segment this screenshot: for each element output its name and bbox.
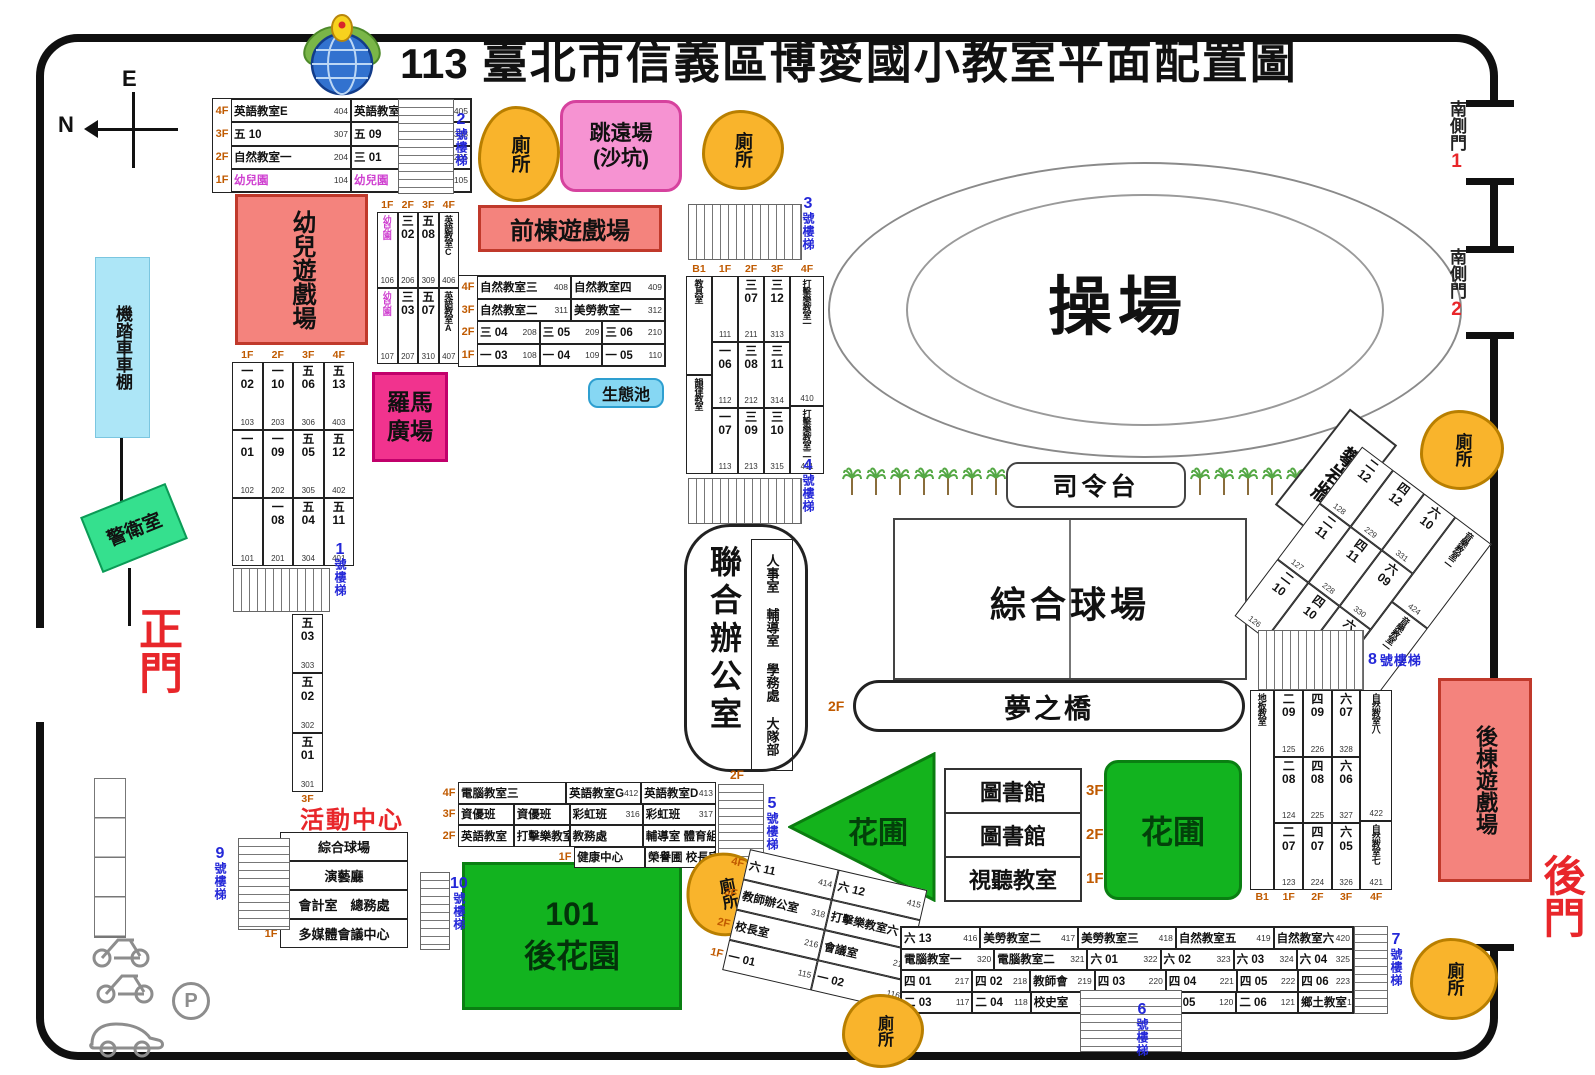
room-number: 217 bbox=[955, 976, 969, 986]
room-number: 320 bbox=[977, 954, 991, 964]
palm-tree-icon bbox=[986, 452, 1006, 508]
room-number: 203 bbox=[271, 418, 284, 427]
room-cell: 四09226 bbox=[1303, 690, 1332, 757]
room-number: 409 bbox=[648, 282, 662, 292]
room-cell: 三07211 bbox=[738, 276, 764, 342]
room-name: 四 05 bbox=[1240, 973, 1268, 989]
room-cell: 彩虹班316 bbox=[570, 804, 643, 826]
table-row: 2F英語教室打擊樂教室五教務處輔導室 體育組215 bbox=[440, 825, 716, 847]
room-name: 自然教室六 bbox=[1277, 930, 1335, 946]
class-number: 06 bbox=[718, 358, 731, 371]
room-number: 328 bbox=[1339, 745, 1352, 754]
room-number: 404 bbox=[334, 106, 348, 116]
room-name: 音樂教室一 bbox=[1379, 614, 1413, 654]
room-cell: 四 02218 bbox=[972, 970, 1030, 992]
room-number: 302 bbox=[301, 721, 314, 730]
room-cell: 美勞教室三418 bbox=[1078, 927, 1176, 949]
room-cell: 自然教室七421 bbox=[1360, 821, 1392, 890]
table-column-body: 五03303五02302五01301 bbox=[292, 614, 323, 792]
room-cell: 電腦教室一320 bbox=[901, 949, 994, 971]
table-column: 3F五06306五05305五04304 bbox=[293, 348, 324, 566]
class-number: 11 bbox=[332, 514, 345, 527]
room-number: 314 bbox=[770, 396, 783, 405]
floor-label: 4F bbox=[1360, 890, 1392, 904]
room-name: 英語教室D bbox=[644, 785, 698, 801]
room-number: 118 bbox=[1014, 997, 1028, 1007]
room-cell: 自然教室五419 bbox=[1176, 927, 1274, 949]
grade-label: 四 bbox=[1311, 760, 1323, 773]
palm-tree-icon bbox=[914, 452, 934, 508]
library-floor-label: 2F bbox=[1086, 826, 1104, 843]
room-number: 124 bbox=[1282, 811, 1295, 820]
room-number: 113 bbox=[719, 462, 732, 471]
room-name: 四 01 bbox=[904, 973, 932, 989]
class-number: 02 bbox=[301, 690, 314, 703]
class-number: 11 bbox=[771, 358, 784, 371]
room-name: 自然教室三 bbox=[480, 279, 538, 295]
palm-tree-icon bbox=[890, 452, 910, 508]
room-name: 六 01 bbox=[1090, 951, 1118, 967]
room-name: 打擊樂教室二 bbox=[801, 409, 814, 457]
room-number: 421 bbox=[1370, 878, 1383, 887]
room-cell: 四 04221 bbox=[1166, 970, 1237, 992]
room-cell: 111 bbox=[712, 276, 738, 342]
floor-label: 2F bbox=[459, 321, 477, 344]
room-name: 美勞教室三 bbox=[1081, 930, 1139, 946]
room-name: 一 01 bbox=[727, 948, 757, 970]
class-number: 08 bbox=[1311, 773, 1324, 786]
class-number: 07 bbox=[1282, 840, 1295, 853]
room-name: 二 04 bbox=[975, 994, 1003, 1010]
room-name: 自然教室五 bbox=[1179, 930, 1237, 946]
room-cell: 五02302 bbox=[292, 673, 323, 732]
class-number: 03 bbox=[301, 630, 314, 643]
table-column-body: 一10203一09202一08201 bbox=[263, 362, 294, 566]
room-number: 213 bbox=[744, 462, 757, 471]
room-name: 美勞教室一 bbox=[574, 302, 632, 318]
gate-gap-south2 bbox=[1486, 252, 1502, 332]
class-number: 07 bbox=[1311, 840, 1324, 853]
table-column: 1F一02103一01102101 bbox=[232, 348, 263, 566]
car-icon bbox=[91, 1024, 163, 1056]
room-cell: 六07328 bbox=[1332, 690, 1361, 757]
gate-tick bbox=[1466, 178, 1514, 185]
floor-label: 1F bbox=[712, 262, 738, 276]
room-number: 311 bbox=[554, 305, 568, 315]
room-cell: 五12402 bbox=[324, 430, 355, 498]
floor-label: B1 bbox=[686, 262, 712, 276]
room-cell: 三02206 bbox=[398, 212, 419, 288]
room-name: 四 06 bbox=[1301, 973, 1329, 989]
class-number: 09 bbox=[271, 446, 284, 459]
room-name: 幼兒園 bbox=[381, 215, 394, 239]
room-cell: 美勞教室二417 bbox=[980, 927, 1078, 949]
room-name: 打擊樂教室一 bbox=[801, 279, 814, 327]
room-number: 224 bbox=[1311, 878, 1324, 887]
room-number: 223 bbox=[1336, 976, 1350, 986]
room-name: 英語教室E bbox=[234, 103, 288, 119]
table-column-body: 五06306五05305五04304 bbox=[293, 362, 324, 566]
room-cell: 二 06121 bbox=[1236, 992, 1298, 1014]
room-name: 幼兒園 bbox=[234, 172, 269, 188]
floor-label: 4F bbox=[213, 99, 231, 122]
grade-label: 四 bbox=[1311, 826, 1323, 839]
room-number: 209 bbox=[585, 327, 599, 337]
floor-label: 3F bbox=[293, 348, 324, 362]
floor-label: 2F bbox=[738, 262, 764, 276]
room-number: 219 bbox=[1078, 976, 1092, 986]
stairs-6 bbox=[1080, 990, 1182, 1052]
stairs-4 bbox=[688, 478, 802, 524]
table-column: 2F一10203一09202一08201 bbox=[263, 348, 294, 566]
multi-court: 綜合球場 bbox=[893, 518, 1247, 680]
room-cell: 自然教室四409 bbox=[571, 276, 665, 299]
back-gate-label: 後門 bbox=[1540, 854, 1582, 938]
room-number: 115 bbox=[797, 967, 812, 980]
class-number: 05 bbox=[1339, 840, 1352, 853]
table-column: 4F打擊樂教室一410打擊樂教室二411 bbox=[790, 262, 824, 474]
room-number: 416 bbox=[963, 933, 977, 943]
room-number: 107 bbox=[381, 352, 394, 361]
room-number: 403 bbox=[332, 418, 345, 427]
room-cell: 幼兒園107 bbox=[377, 288, 398, 364]
room-name: 演藝廳 bbox=[324, 866, 363, 885]
floor-label: B1 bbox=[1250, 890, 1274, 904]
room-cell: 二08124 bbox=[1274, 757, 1303, 824]
room-name: 會計室 總務處 bbox=[298, 895, 389, 914]
class-number: 07 bbox=[744, 292, 757, 305]
room-name: 四 04 bbox=[1169, 973, 1197, 989]
joint-office-building: 聯合辦公室 人事室 輔導室 學務處 大隊部 bbox=[684, 524, 808, 772]
class-number: 07 bbox=[1339, 706, 1352, 719]
stairs-7 bbox=[1354, 926, 1388, 1014]
south-center-building-table: 4F電腦教室三英語教室G412英語教室D4133F資優班資優班彩虹班316彩虹班… bbox=[440, 782, 716, 868]
room-name: 綜合球場 bbox=[318, 837, 370, 856]
class-number: 01 bbox=[301, 749, 314, 762]
joint-office-room-list: 人事室 輔導室 學務處 大隊部 bbox=[751, 539, 793, 771]
table-row: 電腦教室一320電腦教室二321六 01322六 02323六 03324六 0… bbox=[901, 949, 1353, 971]
flower-bed-square: 花圃 bbox=[1104, 760, 1242, 900]
class-number: 02 bbox=[241, 378, 254, 391]
class-number: 06 bbox=[1339, 773, 1352, 786]
room-cell: 教師會219 bbox=[1030, 970, 1095, 992]
room-cell: 三11314 bbox=[764, 342, 790, 408]
room-cell: 四 05222 bbox=[1237, 970, 1298, 992]
room-number: 415 bbox=[906, 896, 922, 909]
room-cell: 地板教室 bbox=[1250, 690, 1274, 890]
back-garden-101: 101後花園 bbox=[462, 862, 682, 1010]
stairs-3-label: 3號樓梯 bbox=[802, 196, 814, 251]
room-number: 105 bbox=[454, 175, 468, 185]
room-cell bbox=[440, 847, 556, 869]
floor-label: 1F bbox=[213, 169, 231, 192]
room-cell: 四07224 bbox=[1303, 823, 1332, 890]
room-name: 六 03 bbox=[1237, 951, 1265, 967]
road-line bbox=[120, 438, 123, 504]
room-cell: 幼兒園104 bbox=[231, 169, 351, 192]
back-playground: 後棟遊戲場 bbox=[1438, 678, 1532, 882]
scooter-shed: 機踏車車棚 bbox=[95, 257, 150, 438]
room-cell: 一08201 bbox=[263, 498, 294, 566]
room-cell: 一02103 bbox=[232, 362, 263, 430]
room-name: 資優班 bbox=[517, 806, 552, 822]
room-number: 201 bbox=[271, 554, 284, 563]
room-number: 402 bbox=[332, 486, 345, 495]
room-number: 101 bbox=[241, 554, 254, 563]
room-cell: 英語教室E404 bbox=[231, 99, 351, 122]
table-column-body: 自然教室八422自然教室七421 bbox=[1360, 690, 1392, 890]
room-number: 109 bbox=[585, 350, 599, 360]
room-name: 教師辦公室 bbox=[741, 887, 801, 916]
room-name: 四 03 bbox=[1098, 973, 1126, 989]
table-column-body: 三07211三08212三09213 bbox=[738, 276, 764, 474]
floor-label: 3F bbox=[213, 122, 231, 145]
middle-building-table: B1教具室韻律教室1F111一06112一071132F三07211三08212… bbox=[686, 262, 824, 474]
table-row: 六 13416美勞教室二417美勞教室三418自然教室五419自然教室六420 bbox=[901, 927, 1353, 949]
room-number: 417 bbox=[1061, 933, 1075, 943]
room-name: 三 05 bbox=[543, 324, 571, 340]
room-cell: 四 03220 bbox=[1095, 970, 1166, 992]
room-cell: 打擊樂教室一410 bbox=[790, 276, 824, 406]
room-cell: 英語教室A407 bbox=[439, 288, 460, 364]
room-number: 301 bbox=[301, 780, 314, 789]
room-number: 222 bbox=[1281, 976, 1295, 986]
room-cell: 英語教室C406 bbox=[439, 212, 460, 288]
room-name: 教具室 bbox=[693, 279, 706, 303]
kindergarten-playground: 幼兒遊戲場 bbox=[235, 194, 368, 345]
room-cell: 綜合球場 bbox=[280, 832, 408, 861]
room-cell: 一 03108 bbox=[477, 344, 540, 367]
class-number: 10 bbox=[770, 424, 783, 437]
compass-e-label: E bbox=[122, 66, 137, 92]
library-floor-row: 視聽教室 bbox=[945, 857, 1081, 901]
room-cell: 六 01322 bbox=[1087, 949, 1160, 971]
room-number: 313 bbox=[770, 330, 783, 339]
room-cell: 三12313 bbox=[764, 276, 790, 342]
room-name: 六 04 bbox=[1300, 951, 1328, 967]
table-column-body: 二09125二08124二07123 bbox=[1274, 690, 1303, 890]
east-building-table: 地板教室B1二09125二08124二071231F四09226四08225四0… bbox=[1250, 690, 1392, 904]
title-year: 113 bbox=[400, 40, 468, 88]
floor-label: 1F bbox=[232, 348, 263, 362]
floor-label: 1F bbox=[1274, 890, 1303, 904]
room-cell: 六 03324 bbox=[1234, 949, 1297, 971]
gate-tick bbox=[1466, 332, 1514, 339]
table-column-body: 一02103一01102101 bbox=[232, 362, 263, 566]
room-cell: 三08212 bbox=[738, 342, 764, 408]
table-column: 3F三12313三11314三10315 bbox=[764, 262, 790, 474]
table-column-body: 教具室韻律教室 bbox=[686, 276, 712, 474]
room-cell: 彩虹班317 bbox=[643, 804, 716, 826]
room-cell: 六06327 bbox=[1332, 757, 1361, 824]
floor-label: 4F bbox=[324, 348, 355, 362]
room-name: 電腦教室三 bbox=[461, 785, 519, 801]
room-name: 教師會 bbox=[1033, 973, 1068, 989]
room-cell: 英語教室D413 bbox=[641, 782, 716, 804]
room-cell: 五04304 bbox=[293, 498, 324, 566]
class-number: 07 bbox=[422, 304, 435, 317]
class-number: 07 bbox=[718, 424, 731, 437]
room-name: 六 11 bbox=[748, 857, 778, 879]
stairs-4-label: 4號樓梯 bbox=[802, 458, 814, 513]
table-row: 3F自然教室二311美勞教室一312 bbox=[459, 299, 665, 322]
room-name: 三 04 bbox=[480, 324, 508, 340]
floor-label: 2F bbox=[398, 198, 419, 212]
floor-label: 3F bbox=[764, 262, 790, 276]
room-number: 111 bbox=[719, 330, 731, 339]
room-number: 303 bbox=[301, 661, 314, 670]
floor-label: 4F bbox=[440, 782, 458, 804]
floor-label: 3F bbox=[459, 299, 477, 322]
floor-label: 1F bbox=[556, 847, 574, 869]
room-name: 韻律教室 bbox=[693, 378, 706, 410]
room-cell: 一09202 bbox=[263, 430, 294, 498]
table-row: 4F自然教室三408自然教室四409 bbox=[459, 276, 665, 299]
room-cell: 一 05110 bbox=[602, 344, 665, 367]
room-cell: 五08309 bbox=[418, 212, 439, 288]
room-number: 309 bbox=[422, 276, 435, 285]
room-cell: 一10203 bbox=[263, 362, 294, 430]
room-name: 六 02 bbox=[1164, 951, 1192, 967]
room-name: 美勞教室二 bbox=[983, 930, 1041, 946]
room-cell: 一07113 bbox=[712, 408, 738, 474]
library-floor-row: 圖書館 bbox=[945, 769, 1081, 813]
room-number: 422 bbox=[1370, 809, 1383, 818]
joint-office-title: 聯合辦公室 bbox=[701, 545, 747, 735]
roman-plaza: 羅馬廣場 bbox=[372, 372, 448, 462]
floor-label: 4F bbox=[459, 276, 477, 299]
room-cell: 三 04208 bbox=[477, 321, 540, 344]
room-number: 304 bbox=[302, 554, 315, 563]
grade-label: 六 bbox=[1340, 826, 1352, 839]
table-column: 4F英語教室C406英語教室A407 bbox=[439, 198, 460, 364]
room-cell: 電腦教室二321 bbox=[994, 949, 1087, 971]
room-cell: 三 05209 bbox=[540, 321, 603, 344]
room-name: 鄉土教室 bbox=[1301, 994, 1347, 1010]
room-number: 419 bbox=[1256, 933, 1270, 943]
room-number: 317 bbox=[699, 809, 713, 819]
room-number: 208 bbox=[522, 327, 536, 337]
room-cell: 一 04109 bbox=[540, 344, 603, 367]
library-building: 圖書館 圖書館 視聽教室 bbox=[944, 768, 1082, 902]
room-cell: 三09213 bbox=[738, 408, 764, 474]
room-cell: 自然教室三408 bbox=[477, 276, 571, 299]
room-number: 305 bbox=[302, 486, 315, 495]
room-name: 英語教室 bbox=[461, 828, 507, 844]
library-floor-label: 3F bbox=[1086, 782, 1104, 799]
room-cell: 五13403 bbox=[324, 362, 355, 430]
room-name: 六 13 bbox=[904, 930, 932, 946]
palm-tree-row-west bbox=[842, 452, 1006, 508]
room-cell: 五01301 bbox=[292, 733, 323, 792]
room-number: 327 bbox=[1339, 811, 1352, 820]
room-cell: 六 04325 bbox=[1297, 949, 1353, 971]
parking-icons bbox=[84, 928, 172, 1058]
room-cell: 電腦教室三 bbox=[458, 782, 566, 804]
office-room: 學務處 bbox=[763, 663, 782, 702]
class-number: 01 bbox=[241, 446, 254, 459]
stairs-6-label: 6號樓梯 bbox=[1136, 1002, 1148, 1057]
table-row: 1F一 03108一 04109一 05110 bbox=[459, 344, 665, 367]
palm-tree-icon bbox=[866, 452, 886, 508]
class-number: 05 bbox=[302, 446, 315, 459]
room-number: 418 bbox=[1159, 933, 1173, 943]
office-room: 人事室 bbox=[763, 554, 782, 593]
palm-tree-icon bbox=[1214, 452, 1234, 508]
room-name: 多媒體會議中心 bbox=[298, 924, 389, 943]
table-row: 2F三 04208三 05209三 06210 bbox=[459, 321, 665, 344]
room-cell: 輔導室 體育組215 bbox=[643, 825, 716, 847]
table-column-body: 五08309五07310 bbox=[418, 212, 439, 364]
floor-label: 1F bbox=[459, 344, 477, 367]
room-name: 自然教室四 bbox=[574, 279, 632, 295]
table-row: 四 01217四 02218教師會219四 03220四 04221四 0522… bbox=[901, 970, 1353, 992]
class-number: 08 bbox=[1282, 773, 1295, 786]
title-text: 臺北市信義區博愛國小教室平面配置圖 bbox=[482, 26, 1298, 92]
front-playground: 前棟遊戲場 bbox=[478, 205, 662, 252]
stairs-1 bbox=[233, 568, 330, 612]
room-cell: 三03207 bbox=[398, 288, 419, 364]
room-cell: 多媒體會議中心 bbox=[280, 919, 408, 948]
dream-bridge: 夢之橋 bbox=[853, 680, 1245, 732]
room-number: 121 bbox=[1281, 997, 1295, 1007]
room-number: 117 bbox=[956, 997, 970, 1007]
room-name: 英語教室A bbox=[442, 291, 455, 332]
west-building-table: 1F一02103一011021012F一10203一09202一082013F五… bbox=[232, 348, 354, 566]
class-number: 08 bbox=[422, 228, 435, 241]
school-floor-plan: 113 臺北市信義區博愛國小教室平面配置圖 E N 4F英語教室E404英語教室… bbox=[0, 0, 1595, 1075]
room-name: 一 03 bbox=[480, 347, 508, 363]
table-column: B1教具室韻律教室 bbox=[686, 262, 712, 474]
room-cell: 健康中心 bbox=[574, 847, 645, 869]
room-cell: 五07310 bbox=[418, 288, 439, 364]
room-number: 322 bbox=[1143, 954, 1157, 964]
room-cell: 五05305 bbox=[293, 430, 324, 498]
room-number: 108 bbox=[522, 350, 536, 360]
stairs-7-label: 7號樓梯 bbox=[1390, 932, 1402, 987]
room-cell: 資優班 bbox=[514, 804, 570, 826]
room-number: 408 bbox=[554, 282, 568, 292]
room-number: 211 bbox=[745, 330, 758, 339]
room-cell: 演藝廳 bbox=[280, 861, 408, 890]
room-number: 120 bbox=[1219, 997, 1233, 1007]
floor-label: 4F bbox=[790, 262, 824, 276]
stairs-10-label: 10號樓梯 bbox=[450, 876, 468, 931]
room-cell: 五06306 bbox=[293, 362, 324, 430]
stairs-3 bbox=[688, 204, 802, 260]
stairs-2 bbox=[398, 99, 454, 194]
room-cell: 四08225 bbox=[1303, 757, 1332, 824]
south-side-gate-1: 南側門 1 bbox=[1444, 100, 1469, 173]
floor-label: 3F bbox=[1332, 890, 1361, 904]
room-cell: 六 02323 bbox=[1161, 949, 1234, 971]
parking-p-icon: P bbox=[172, 982, 210, 1020]
room-number: 218 bbox=[1013, 976, 1027, 986]
room-cell: 三 06210 bbox=[602, 321, 665, 344]
eco-pond: 生態池 bbox=[588, 378, 664, 408]
palm-tree-icon bbox=[1190, 452, 1210, 508]
front-building-table: 4F自然教室三408自然教室四4093F自然教室二311美勞教室一3122F三 … bbox=[458, 275, 666, 367]
class-number: 09 bbox=[744, 424, 757, 437]
table-column-body: 幼兒園106幼兒園107 bbox=[377, 212, 398, 364]
room-name: 打擊樂教室五 bbox=[517, 828, 570, 844]
commanding-stage: 司令台 bbox=[1006, 462, 1186, 508]
room-number: 323 bbox=[1216, 954, 1230, 964]
room-number: 324 bbox=[1279, 954, 1293, 964]
table-column-body: 四09226四08225四07224 bbox=[1303, 690, 1332, 890]
room-number: 414 bbox=[817, 876, 833, 889]
compass-arrow-icon bbox=[84, 120, 98, 138]
